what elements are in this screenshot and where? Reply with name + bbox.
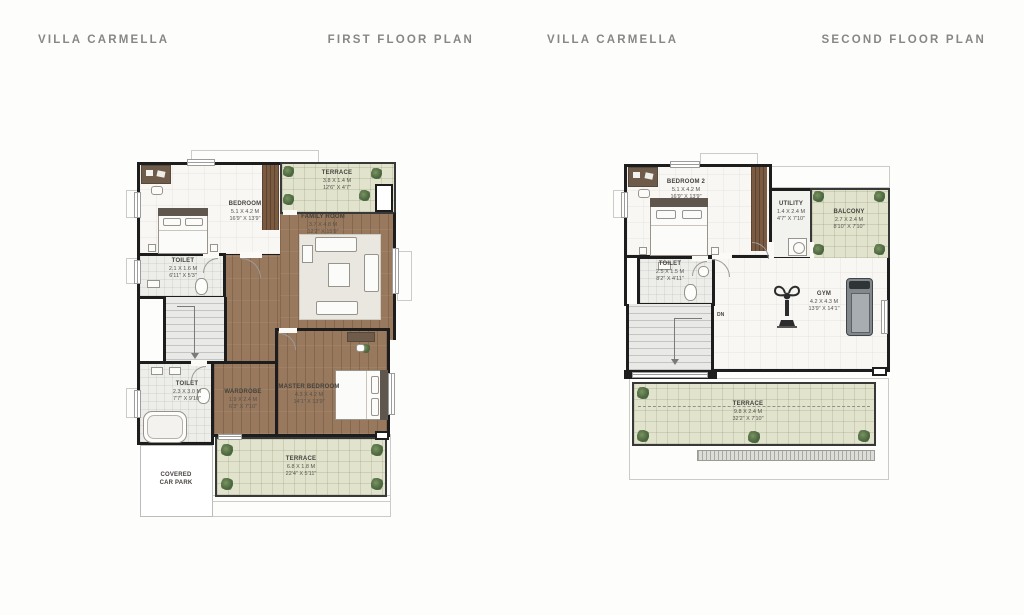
toilet-wc xyxy=(684,284,697,301)
second-floor-plan: DN BEDROOM 2 5.1 X 4.2 M 16'9" X 13'9" U… xyxy=(612,150,897,500)
exterior-outline xyxy=(769,166,890,188)
sink xyxy=(147,280,160,288)
plant xyxy=(813,191,824,202)
bed xyxy=(650,198,708,256)
plant xyxy=(637,430,649,442)
window xyxy=(134,390,141,418)
pillow xyxy=(682,210,702,219)
treadmill-belt xyxy=(851,293,870,333)
desk-item xyxy=(156,170,165,178)
wardrobe-panel xyxy=(262,165,279,230)
sofa xyxy=(316,301,358,315)
headboard xyxy=(158,208,208,216)
chair xyxy=(638,189,650,198)
stair-direction-label: DN xyxy=(717,312,724,318)
desk-item xyxy=(633,172,640,178)
treadmill xyxy=(846,278,873,336)
page-title: VILLA CARMELLA xyxy=(38,34,169,46)
wardrobe-panel xyxy=(751,167,767,251)
side-table xyxy=(302,245,313,263)
plan-subtitle: FIRST FLOOR PLAN xyxy=(328,34,474,46)
nightstand xyxy=(148,244,156,252)
wardrobe-floor xyxy=(211,361,278,437)
exterior-outline xyxy=(397,251,412,301)
desk xyxy=(628,167,658,187)
washer-drum xyxy=(793,242,805,254)
sink xyxy=(151,367,163,375)
window xyxy=(187,159,215,166)
window xyxy=(621,192,628,218)
bed xyxy=(335,370,388,420)
stair-arrow xyxy=(674,318,675,360)
armchair xyxy=(364,254,379,292)
stair-arrow xyxy=(177,306,195,307)
desk-item xyxy=(146,170,153,176)
chair xyxy=(151,186,163,195)
wall xyxy=(137,297,140,367)
window xyxy=(670,161,700,168)
plan-subtitle: SECOND FLOOR PLAN xyxy=(821,34,986,46)
plant xyxy=(371,444,383,456)
bathtub xyxy=(143,411,187,443)
plant xyxy=(637,387,649,399)
sink xyxy=(169,367,181,375)
treadmill-console xyxy=(849,281,870,289)
staircase xyxy=(626,304,714,370)
second-plan-header: VILLA CARMELLA SECOND FLOOR PLAN xyxy=(547,34,986,46)
bed xyxy=(158,208,208,254)
sink xyxy=(658,262,671,270)
pillow xyxy=(656,210,676,219)
plant xyxy=(359,190,370,201)
sofa xyxy=(315,237,357,252)
plant xyxy=(874,191,885,202)
plant xyxy=(748,431,760,443)
stair-arrow xyxy=(674,318,702,319)
door-opening xyxy=(769,242,774,258)
duvet-line xyxy=(366,371,367,419)
pillow xyxy=(371,398,379,416)
terrace-sliding-door xyxy=(218,434,242,440)
page-title: VILLA CARMELLA xyxy=(547,34,678,46)
nightstand xyxy=(711,247,719,255)
elliptical-machine-icon xyxy=(772,282,802,330)
coffee-table xyxy=(328,263,350,287)
door-opening xyxy=(283,210,297,215)
headboard xyxy=(380,370,388,420)
toilet-wc xyxy=(195,278,208,295)
desk xyxy=(141,165,171,184)
plant xyxy=(874,244,885,255)
plant xyxy=(371,478,383,490)
car-park-area xyxy=(140,445,213,517)
plant xyxy=(371,168,382,179)
stair-arrow xyxy=(194,306,195,354)
duvet-line xyxy=(651,225,707,226)
stair-arrowhead xyxy=(671,359,679,365)
stool xyxy=(356,344,365,352)
window xyxy=(134,192,141,218)
window xyxy=(881,300,888,334)
first-floor-plan: BEDROOM 5.1 X 4.2 M 16'9" X 13'9" TERRAC… xyxy=(125,148,425,528)
plant xyxy=(221,444,233,456)
toilet-wc xyxy=(197,388,210,404)
nightstand xyxy=(639,247,647,255)
desk-item xyxy=(644,172,653,180)
bathtub-inner xyxy=(147,415,183,439)
basin xyxy=(698,266,709,277)
pillow xyxy=(185,218,203,226)
duct-box xyxy=(375,184,393,212)
pillow xyxy=(163,218,181,226)
window xyxy=(388,373,395,415)
plant xyxy=(813,244,824,255)
window xyxy=(392,248,399,294)
nightstand xyxy=(210,244,218,252)
pillow xyxy=(371,376,379,394)
plant xyxy=(858,430,870,442)
terrace-bottom-floor xyxy=(215,437,387,497)
duct-box xyxy=(375,431,389,440)
plant xyxy=(221,478,233,490)
window xyxy=(134,260,141,284)
duvet-line xyxy=(159,230,207,231)
plant xyxy=(283,166,294,177)
dresser xyxy=(347,332,375,342)
door-opening xyxy=(240,252,262,258)
terrace-sliding-door xyxy=(632,372,708,378)
wall xyxy=(624,256,627,306)
stair-arrowhead xyxy=(191,353,199,359)
pergola-strip xyxy=(697,450,875,461)
plant xyxy=(283,194,294,205)
washer xyxy=(788,238,807,256)
duct-box xyxy=(872,367,887,376)
terrace-dashed-line xyxy=(638,406,870,407)
headboard xyxy=(650,198,708,207)
first-plan-header: VILLA CARMELLA FIRST FLOOR PLAN xyxy=(38,34,474,46)
